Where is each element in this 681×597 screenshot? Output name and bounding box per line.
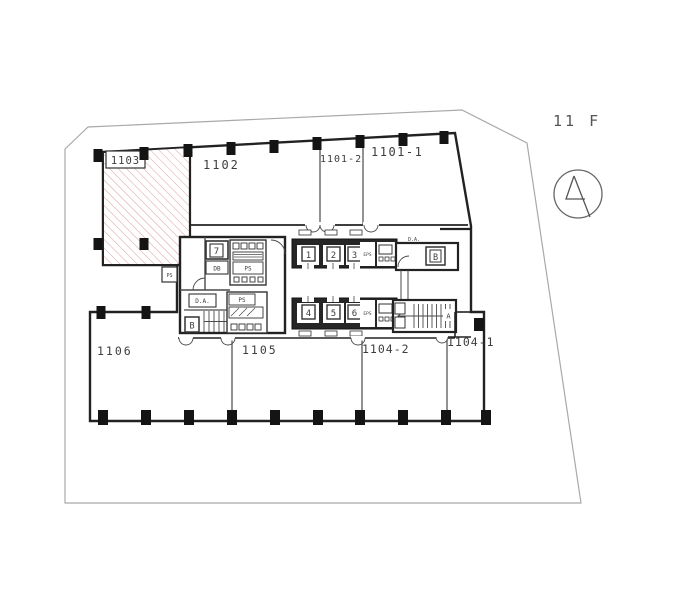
ps-west: PS (162, 267, 177, 282)
room-1102-label: 1102 (203, 158, 240, 172)
floor-label: 11 F (553, 112, 601, 130)
elevator-1: 1 (302, 247, 315, 261)
floor-plan-svg: 1103 1102 1101-2 1101-1 7 DB (0, 0, 681, 597)
room-1103-label: 1103 (111, 155, 140, 167)
elevator-4-label: 4 (306, 309, 311, 319)
elevator-3-label: 3 (352, 251, 357, 261)
eps-bottom-label: EPS (363, 311, 371, 317)
stair-b-label: B (189, 322, 194, 332)
eps-top-label: EPS (363, 252, 371, 258)
room-1106-label: 1106 (97, 344, 133, 358)
room-1104-2-label: 1104-2 (362, 342, 410, 356)
ps-upper-label: PS (244, 266, 252, 273)
eps-room-bottom: EPS (360, 300, 375, 327)
db-shaft: DB (206, 261, 228, 274)
ps-west-label: PS (166, 273, 172, 279)
eps-room-top: EPS (360, 242, 375, 266)
room-1104-1-label: 1104-1 (447, 335, 495, 349)
north-arrow-icon (566, 176, 590, 217)
elevator-7-label: 7 (214, 247, 219, 257)
db-label: DB (213, 266, 221, 273)
elevator-6: 6 (348, 305, 361, 319)
elevator-2-label: 2 (331, 251, 336, 261)
da-east-label: D.A. (408, 237, 420, 243)
ps-lower-label: PS (238, 297, 246, 304)
pipe-shaft-upper: PS (230, 240, 266, 285)
thresholds-bottom (299, 331, 362, 336)
da-area-west: D.A. (189, 294, 216, 307)
stair-a: A (393, 300, 456, 332)
elevator-5-label: 5 (331, 309, 336, 319)
room-1105-label: 1105 (242, 343, 278, 357)
compass (554, 170, 602, 218)
floorplan-canvas: 1103 1102 1101-2 1101-1 7 DB (0, 0, 681, 597)
room-1101-1-label: 1101-1 (371, 145, 423, 159)
elevator-6-label: 6 (352, 309, 357, 319)
elevator-4: 4 (302, 305, 315, 319)
duct-room-top (377, 242, 395, 266)
da-west-label: D.A. (195, 298, 209, 305)
elevator-1-label: 1 (306, 251, 311, 261)
pipe-shaft-lower: PS (227, 292, 267, 333)
service-room-b: B D.A. (396, 237, 458, 270)
elevator-5: 5 (327, 305, 340, 319)
core-left: 7 DB PS D.A. (180, 237, 285, 333)
service-room-b-label: B (433, 253, 438, 263)
elevator-2: 2 (327, 247, 340, 261)
thresholds-top (299, 230, 362, 235)
elevator-3: 3 (348, 247, 361, 261)
elevator-7: 7 (206, 241, 228, 259)
room-1101-2-label: 1101-2 (320, 154, 362, 165)
